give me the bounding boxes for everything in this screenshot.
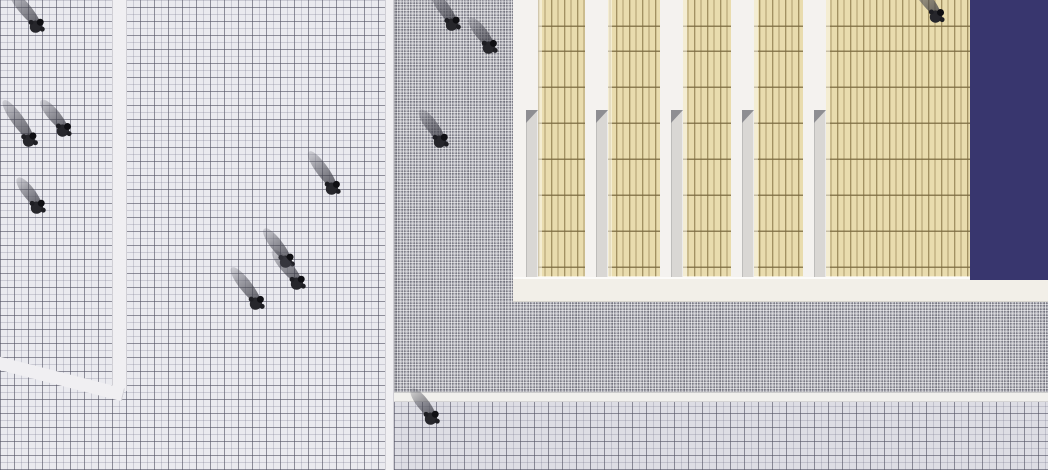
roof-gap-column xyxy=(742,110,754,277)
column-shadow-triangle xyxy=(814,110,826,123)
column-shadow-triangle xyxy=(596,110,608,123)
scene xyxy=(0,0,1048,470)
roof-gap xyxy=(731,0,754,277)
roof-bottom-band xyxy=(513,277,1048,302)
plaza-bottom-pavement xyxy=(394,402,1048,470)
roof-gap xyxy=(803,0,826,277)
plaza-left-pavement xyxy=(0,0,386,470)
column-shadow-triangle xyxy=(671,110,683,123)
roof-gap-column xyxy=(814,110,826,277)
column-shadow-triangle xyxy=(526,110,538,123)
apron-walk-band xyxy=(394,392,1048,402)
pool xyxy=(970,0,1048,280)
building-roof xyxy=(513,0,1048,302)
roof-gap-column xyxy=(671,110,683,277)
roof-gap xyxy=(660,0,683,277)
roof-gap-column xyxy=(596,110,608,277)
column-shadow-triangle xyxy=(742,110,754,123)
roof-left-column-strip xyxy=(526,110,538,277)
plaza-divider-strip xyxy=(385,0,394,470)
roof-gap xyxy=(585,0,608,277)
plaza-walk-strip-vertical xyxy=(112,0,127,391)
